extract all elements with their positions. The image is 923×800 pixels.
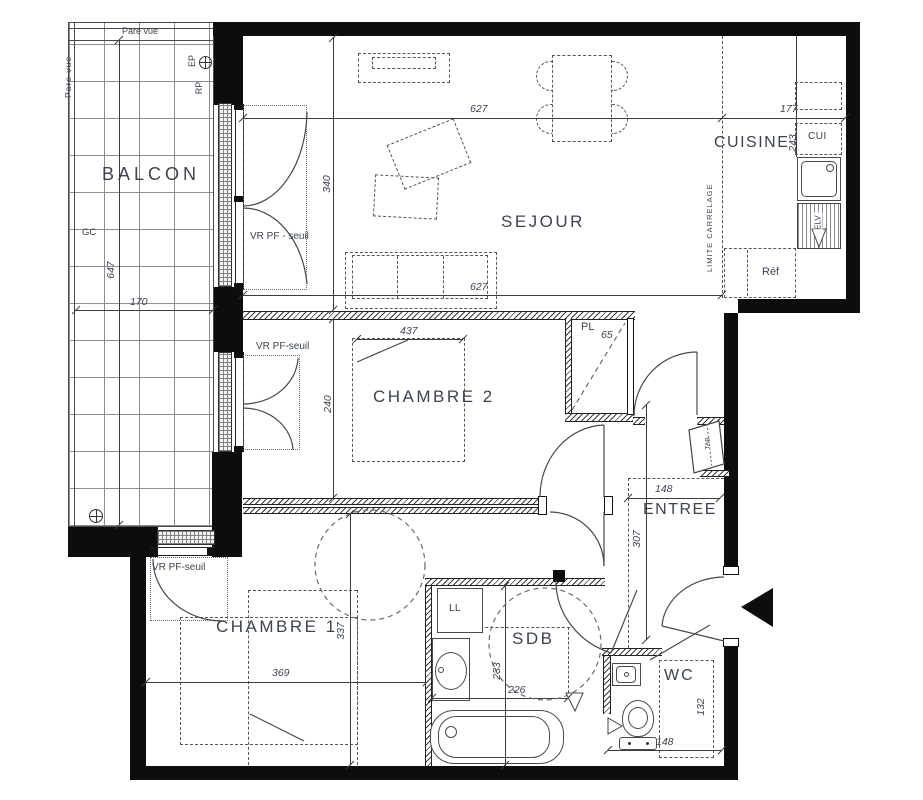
dim-cuisine-depth: 243 bbox=[787, 126, 799, 160]
wall-corridor-lower bbox=[243, 507, 540, 514]
corridor-jamb-right bbox=[604, 496, 613, 515]
dim-line-sejour-depth bbox=[333, 38, 334, 310]
pare-vue-left-label: Pare vue bbox=[63, 34, 73, 98]
dim-line-wc-width bbox=[608, 750, 722, 751]
sofa-divider-2 bbox=[443, 256, 444, 298]
wc-basin-drain bbox=[624, 672, 629, 677]
vr-pf-seuil-chambre1: VR PF-seuil bbox=[152, 562, 205, 573]
sideboard-inner bbox=[372, 57, 436, 69]
gc-label: GC bbox=[82, 227, 96, 238]
wall-chambre2-top bbox=[243, 311, 635, 320]
sejour-window-shutter bbox=[218, 103, 232, 287]
toilet-base bbox=[619, 737, 657, 750]
dim-ch1-depth: 337 bbox=[335, 614, 347, 648]
wall-tab-bottom bbox=[700, 470, 729, 477]
pl-label: PL bbox=[581, 321, 594, 333]
limite-carrelage-label: LIMITE CARRELAGE bbox=[705, 172, 714, 272]
tab-label: TAB bbox=[705, 434, 712, 454]
wall-sdb-top bbox=[425, 578, 605, 586]
dim-sdb-width: 226 bbox=[508, 684, 526, 696]
room-label-sdb: SDB bbox=[512, 629, 554, 649]
dim-line-ch1-depth bbox=[350, 514, 351, 765]
entree-boundary-v bbox=[628, 478, 629, 648]
dining-table bbox=[552, 55, 612, 142]
entrance-frame-bottom bbox=[723, 638, 739, 647]
pl-diagonal bbox=[572, 323, 625, 410]
dim-wc-depth: 132 bbox=[695, 690, 707, 724]
cui-label: CUI bbox=[808, 131, 827, 142]
entrance-frame-top bbox=[723, 566, 739, 575]
room-label-chambre2: CHAMBRE 2 bbox=[373, 387, 495, 407]
dim-line-balcon-depth bbox=[119, 40, 120, 525]
dim-sejour-width: 627 bbox=[470, 103, 488, 115]
chambre1-wardrobe-top bbox=[248, 590, 357, 591]
wall-tab-top bbox=[697, 417, 724, 425]
entrance-door-arc bbox=[662, 577, 724, 626]
chambre2-window-shutter bbox=[218, 352, 232, 452]
dim-entree-depth: 307 bbox=[631, 522, 643, 556]
dim-sejour-width-b: 627 bbox=[470, 281, 488, 293]
corridor-jamb-left bbox=[538, 496, 547, 515]
chair-top-left bbox=[536, 61, 552, 91]
room-label-sejour: SEJOUR bbox=[501, 212, 585, 232]
wall-kitchen-step bbox=[738, 299, 860, 313]
dim-entree-width: 148 bbox=[655, 483, 673, 495]
dim-ch2-depth: 240 bbox=[322, 387, 334, 421]
wall-balcony-right-1 bbox=[214, 22, 243, 105]
chambre1-door-arc bbox=[550, 512, 604, 566]
wall-left-low bbox=[130, 557, 146, 780]
wall-balcony-right-2 bbox=[214, 287, 243, 352]
limite-carrelage-line bbox=[722, 36, 723, 298]
sofa-divider-1 bbox=[397, 256, 398, 298]
rp-label: RP bbox=[194, 79, 204, 97]
room-label-entree: ENTREE bbox=[643, 501, 717, 519]
wall-wc-left bbox=[603, 656, 611, 714]
bathtub-inner bbox=[438, 716, 550, 758]
sdb-door-arc bbox=[556, 580, 611, 653]
balcony-area bbox=[68, 22, 214, 527]
sdb-door-marker bbox=[566, 693, 583, 711]
ep-label: EP bbox=[187, 52, 197, 70]
balcony-rail-top2 bbox=[68, 40, 214, 41]
dim-cuisine-width: 177 bbox=[780, 103, 798, 115]
sofa-seats bbox=[352, 255, 488, 299]
sdb-boundary-h bbox=[470, 627, 570, 628]
wall-corridor-upper bbox=[243, 498, 540, 505]
floor-plan: BALCON SEJOUR CUISINE CHAMBRE 2 CHAMBRE … bbox=[0, 0, 923, 800]
toilet-bolt-left bbox=[628, 742, 631, 745]
kitchen-faucet bbox=[826, 164, 834, 172]
toilet-bowl-inner bbox=[628, 707, 648, 729]
sejour-door-zone bbox=[243, 105, 307, 290]
pl-door-panel bbox=[627, 318, 634, 415]
dim-balcon-width: 170 bbox=[130, 296, 148, 308]
wall-pl-bottom bbox=[565, 413, 635, 422]
ref-label: Réf bbox=[762, 266, 779, 278]
dim-line-entree-depth bbox=[646, 405, 647, 640]
chambre2-corridor-door-arc bbox=[540, 425, 604, 497]
vr-pf-seuil-sejour: VR PF - seuil bbox=[250, 231, 309, 242]
sdb-boundary-v bbox=[568, 627, 569, 693]
vr-pf-seuil-chambre2: VR PF-seuil bbox=[256, 341, 309, 352]
rainwater-pipe-symbol-top bbox=[199, 56, 212, 69]
dim-sejour-depth: 340 bbox=[321, 167, 333, 201]
dim-sdb-depth: 233 bbox=[491, 654, 503, 688]
balcony-rail-left bbox=[74, 22, 75, 527]
chambre1-window-sill-left bbox=[150, 548, 158, 556]
wall-right-low bbox=[724, 641, 738, 780]
room-label-cuisine: CUISINE bbox=[714, 134, 789, 152]
bathtub-drain bbox=[445, 726, 457, 738]
dim-line-sdb-depth bbox=[505, 586, 506, 766]
turning-circle-chambre1 bbox=[315, 510, 425, 620]
dim-line-sejour-bottom bbox=[243, 295, 722, 296]
dim-wc-width-value: 148 bbox=[656, 736, 674, 748]
wall-bottom bbox=[130, 766, 738, 780]
chair-bottom-left bbox=[536, 104, 552, 134]
sejour-entree-door-arc bbox=[634, 352, 697, 416]
room-label-wc: WC bbox=[664, 667, 695, 685]
room-label-balcon: BALCON bbox=[102, 164, 200, 185]
entrance-door-leaf bbox=[662, 626, 724, 641]
dim-line-sdb-width bbox=[432, 698, 568, 699]
wall-sdb-door-jamb bbox=[553, 570, 565, 582]
dim-line-balcon-width bbox=[76, 310, 213, 311]
entrance-arrow bbox=[741, 588, 773, 627]
dim-balcon-depth: 647 bbox=[105, 253, 117, 287]
dim-line-ch2-bed bbox=[357, 339, 463, 340]
entree-boundary-h bbox=[628, 478, 724, 479]
kitchen-upper-cabinet bbox=[795, 82, 842, 110]
wall-sejour-entree-jamb bbox=[633, 417, 645, 425]
wall-balcony-right-3 bbox=[212, 452, 242, 557]
wall-top bbox=[213, 22, 860, 36]
room-label-chambre1: CHAMBRE 1 bbox=[216, 617, 338, 637]
pare-vue-top-label: Pare vue bbox=[122, 26, 158, 36]
chambre2-door-zone bbox=[243, 355, 300, 450]
dim-line-ch1-width bbox=[146, 682, 427, 683]
wall-wc-top bbox=[602, 648, 662, 656]
armchair bbox=[373, 174, 439, 219]
dim-ch1-width: 369 bbox=[272, 667, 290, 679]
fridge bbox=[724, 248, 796, 298]
chair-top-right bbox=[612, 61, 628, 91]
wall-right-mid bbox=[724, 313, 738, 572]
wc-door-marker bbox=[608, 718, 622, 734]
chambre1-window bbox=[150, 547, 215, 556]
fridge-divider bbox=[747, 250, 748, 296]
elv-label: ELV bbox=[814, 213, 823, 233]
chambre1-wardrobe-right bbox=[357, 590, 358, 765]
ll-label: LL bbox=[449, 602, 461, 614]
rainwater-pipe-symbol-bottom bbox=[89, 509, 103, 523]
dim-pl-width: 65 bbox=[601, 329, 613, 341]
chambre1-window-shutter bbox=[157, 530, 215, 545]
wall-balcony-bottom bbox=[68, 527, 158, 557]
dim-ch2-bed: 437 bbox=[400, 325, 418, 337]
wall-pl-left bbox=[565, 318, 572, 420]
chair-bottom-right bbox=[612, 104, 628, 134]
toilet-bolt-right bbox=[646, 742, 649, 745]
dim-line-entree-width bbox=[628, 498, 720, 499]
wall-right-top bbox=[846, 22, 860, 313]
chambre1-window-sill-right bbox=[207, 548, 215, 556]
sdb-basin-tap bbox=[438, 667, 444, 673]
sdb-door-leaf bbox=[611, 590, 637, 653]
